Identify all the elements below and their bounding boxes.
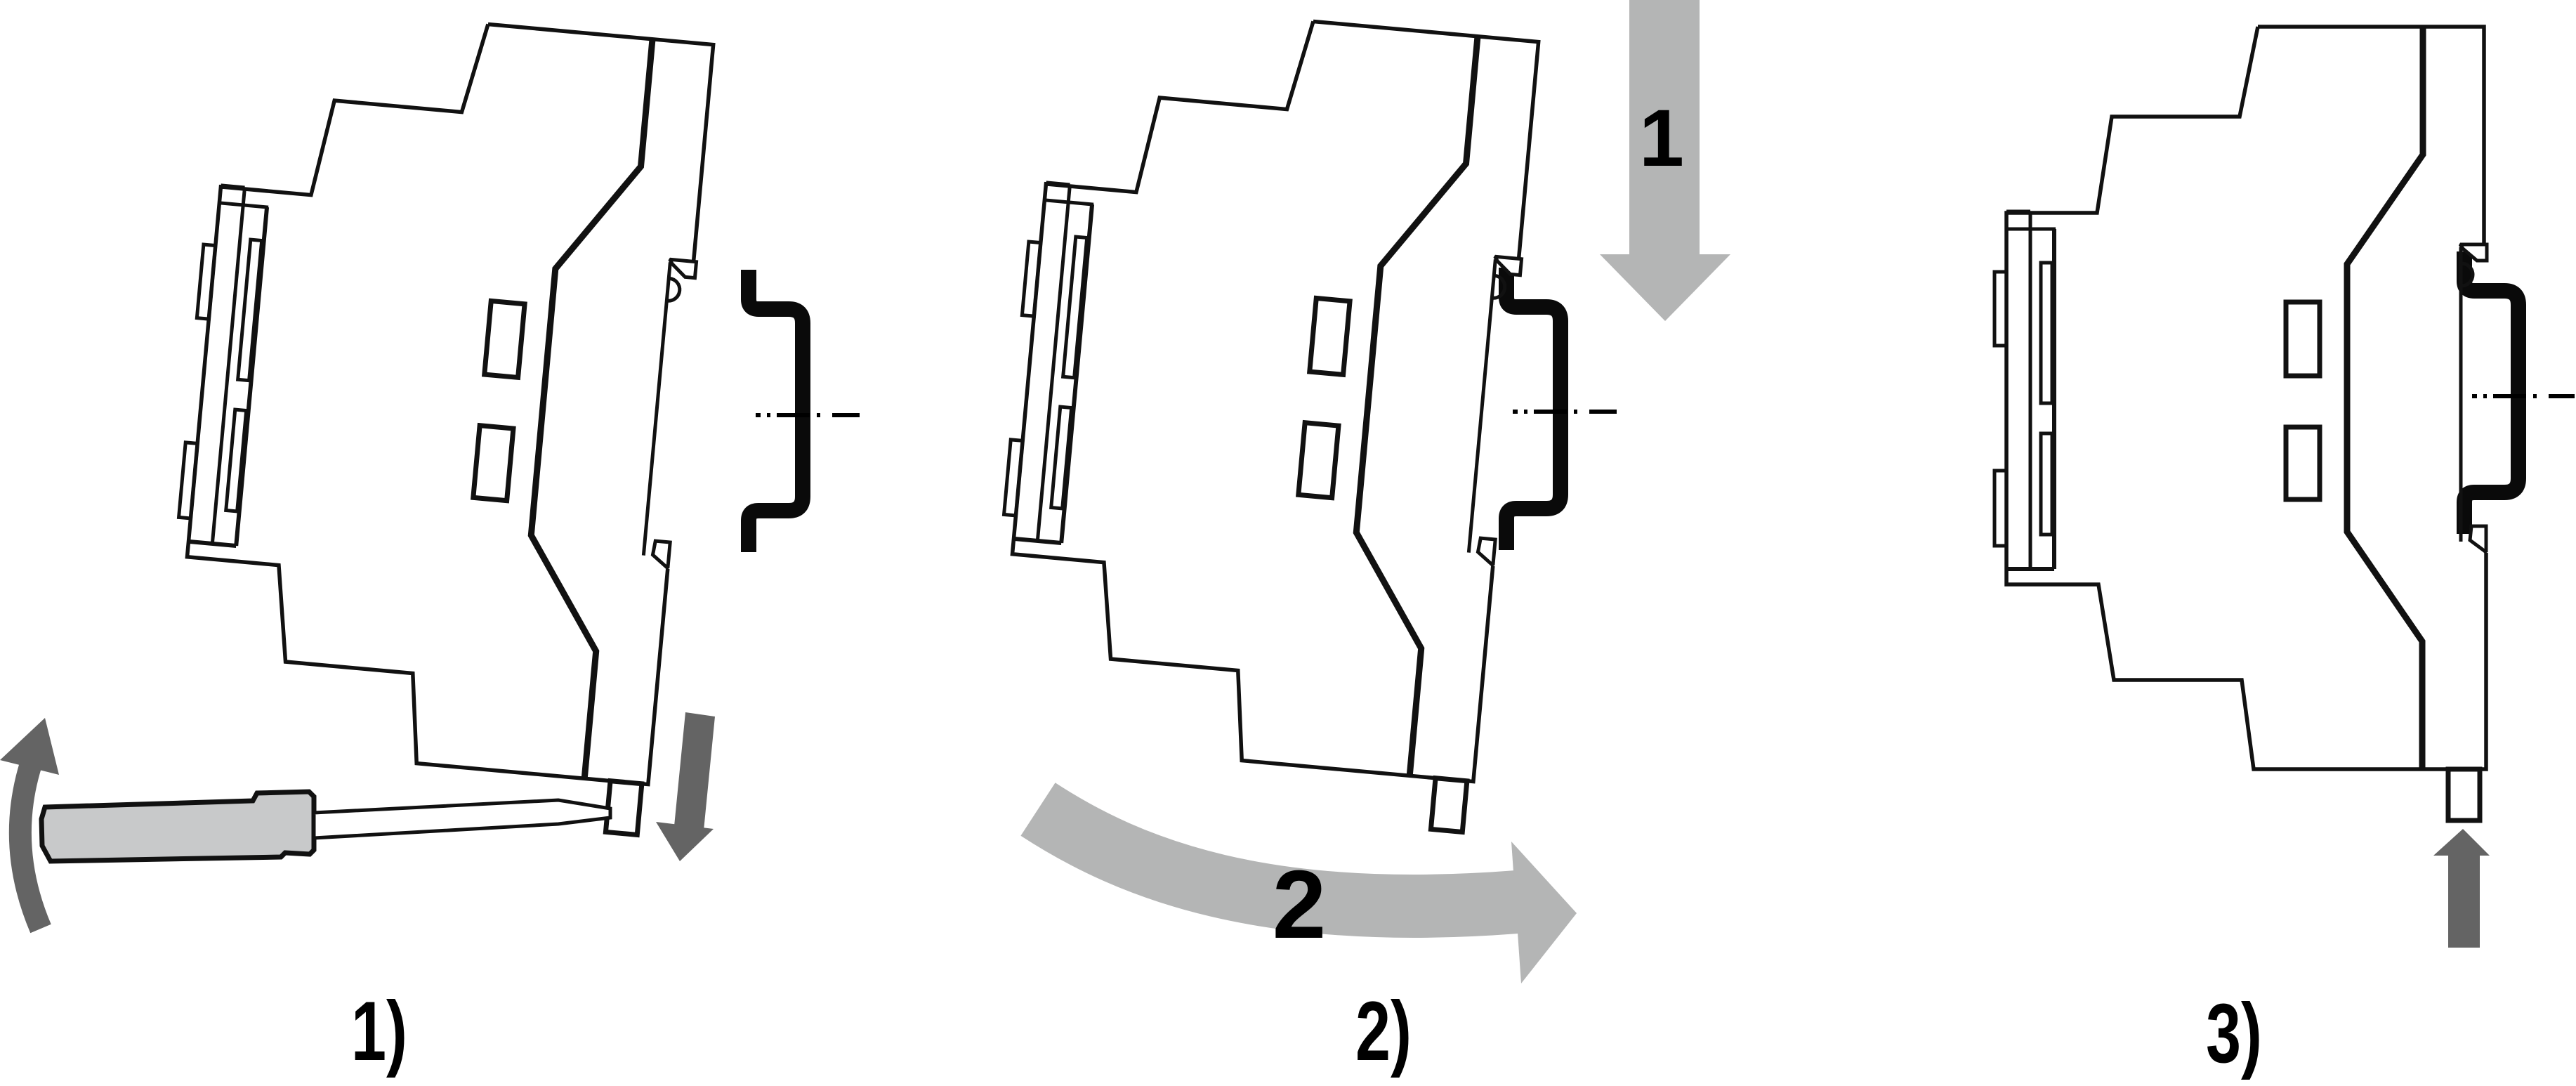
svg-text:1: 1 [1639, 93, 1684, 183]
svg-text:3): 3) [2206, 986, 2262, 1080]
svg-text:1): 1) [351, 984, 407, 1078]
svg-text:2: 2 [1273, 851, 1327, 959]
svg-text:2): 2) [1355, 984, 1412, 1078]
